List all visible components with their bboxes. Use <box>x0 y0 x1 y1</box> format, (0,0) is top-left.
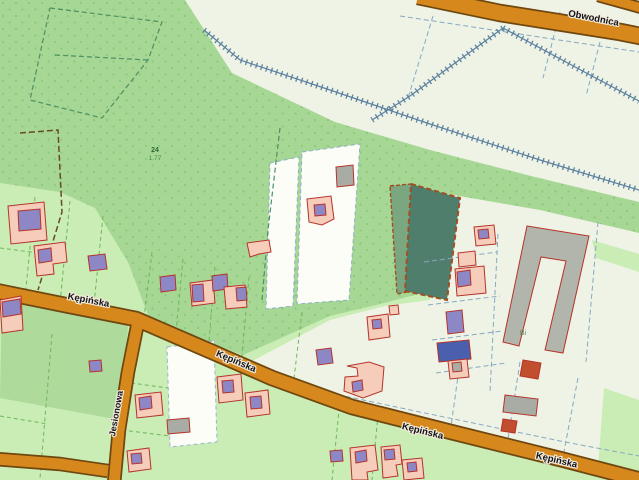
house-roof <box>222 380 234 393</box>
house-roof <box>372 319 382 329</box>
parcel-label-area: 1.77 <box>149 155 162 162</box>
house-roof <box>352 380 363 392</box>
house-roof <box>131 453 142 464</box>
outbuilding <box>316 348 333 365</box>
building-red <box>501 419 517 433</box>
house-roof <box>384 449 395 460</box>
house-roof <box>139 396 152 410</box>
house-roof <box>250 396 262 409</box>
house-roof <box>192 284 204 302</box>
house-roof <box>236 287 247 301</box>
parcel-label-number: 24 <box>151 147 159 154</box>
map-canvas[interactable]: ObwodnicaKępińskaKępińskaKępińskaKępińsk… <box>0 0 639 480</box>
house-roof <box>457 270 471 287</box>
house-roof <box>2 299 21 317</box>
map-viewport: ObwodnicaKępińskaKępińskaKępińskaKępińsk… <box>0 0 639 480</box>
outbuilding <box>330 450 343 462</box>
outbuilding <box>503 395 538 416</box>
house-roof <box>38 248 52 263</box>
house-roof <box>478 229 489 239</box>
outbuilding <box>160 275 176 292</box>
outbuilding <box>167 418 190 434</box>
house-roof <box>407 462 417 472</box>
house-roof <box>314 204 326 216</box>
shed <box>389 305 399 315</box>
outbuilding <box>88 254 107 271</box>
house-roof <box>355 450 367 463</box>
shed <box>458 251 476 267</box>
outbuilding <box>446 310 464 334</box>
house-roof <box>452 362 462 372</box>
house-roof <box>18 209 41 231</box>
outbuilding <box>89 360 102 372</box>
building-red <box>520 360 541 379</box>
parcel-label-use: Bi <box>520 330 527 337</box>
outbuilding <box>336 165 354 187</box>
